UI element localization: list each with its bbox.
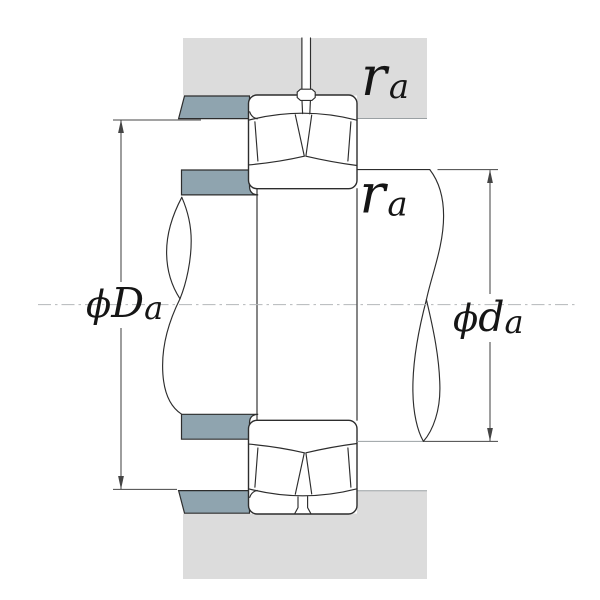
bearing-section-top	[249, 89, 358, 189]
Da-label: ϕDa	[86, 279, 163, 327]
fillet-labels: ra ra	[360, 45, 410, 226]
oil-hole-right-top	[310, 101, 311, 114]
bearing-mounting-diagram: ϕDa ϕda ra ra	[0, 0, 600, 600]
break-line-right-lens-inner	[423, 300, 440, 442]
oil-channel-bore	[302, 38, 311, 90]
da-arrow-up	[487, 170, 493, 183]
da-arrow-down	[487, 428, 493, 441]
break-line-left-tail	[163, 299, 182, 414]
housing-shoulder-top	[179, 96, 250, 119]
da-label: ϕda	[453, 293, 524, 341]
housing-shoulder-bottom	[179, 491, 250, 514]
shaft-spacer-top	[182, 170, 259, 195]
Da-arrow-down	[118, 476, 124, 489]
oil-groove-plug	[297, 89, 315, 100]
drawing-canvas: ϕDa ϕda ra ra	[0, 0, 600, 600]
shaft-fillet-label: ra	[360, 163, 408, 226]
housing-block-top-left	[183, 38, 302, 96]
bearing-section-bottom	[249, 420, 358, 514]
break-line-left-lens-outer	[167, 197, 182, 298]
shaft-left-break	[163, 197, 192, 414]
oil-hole-left-top	[302, 101, 303, 114]
dimension-da: ϕda	[423, 170, 523, 442]
Da-arrow-up	[118, 120, 124, 133]
break-line-right-tail	[426, 170, 443, 300]
break-line-left-lens-inner	[180, 197, 191, 298]
break-line-right-lens-outer	[413, 300, 427, 442]
shaft-spacer-bottom	[182, 414, 259, 439]
bearing-bottom-outline	[249, 420, 358, 514]
